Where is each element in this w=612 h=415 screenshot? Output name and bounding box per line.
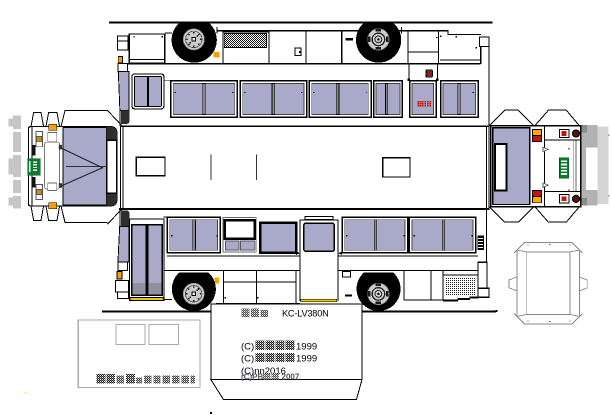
svg-text:(C): (C)	[241, 341, 254, 352]
svg-text:(C): (C)	[241, 354, 254, 365]
svg-text:(C)PB: (C)PB	[241, 373, 263, 382]
svg-text:2007: 2007	[282, 373, 300, 382]
svg-text:1999: 1999	[296, 354, 317, 365]
svg-text:1999: 1999	[296, 341, 317, 352]
svg-text:KC-LV380N: KC-LV380N	[282, 308, 329, 318]
